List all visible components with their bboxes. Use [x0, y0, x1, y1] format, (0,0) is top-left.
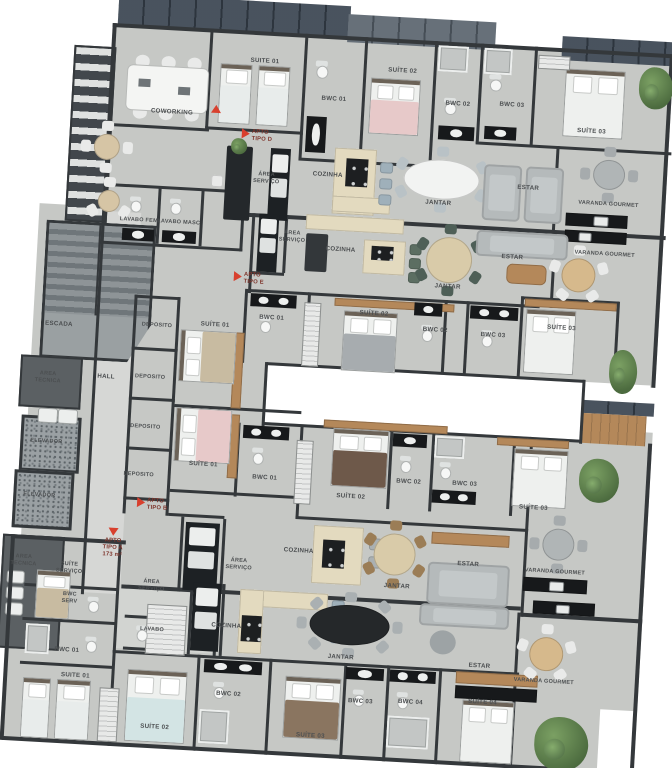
- wood-deck: [581, 413, 647, 447]
- apartment-marker: APTO TIPO B: [137, 497, 168, 513]
- sink: [214, 662, 227, 670]
- sink: [312, 123, 320, 145]
- blanket: [256, 87, 288, 126]
- single-bed: [217, 63, 252, 125]
- pillow: [134, 676, 154, 694]
- pillow: [544, 457, 562, 472]
- double-bed: [173, 407, 232, 464]
- sink: [578, 232, 591, 242]
- pillow: [292, 683, 311, 699]
- chair: [379, 178, 393, 190]
- bathroom-vanity: [432, 490, 477, 505]
- sink: [499, 310, 510, 318]
- chair: [553, 515, 566, 526]
- toilet: [399, 456, 411, 472]
- pillow: [182, 415, 197, 433]
- sink: [239, 664, 252, 672]
- double-bed: [330, 428, 389, 489]
- stove: [345, 158, 369, 187]
- room-label: SUÍTE 03: [577, 127, 606, 137]
- pillow: [490, 708, 508, 724]
- washer: [196, 588, 218, 607]
- single-bed: [54, 679, 91, 741]
- plant-leaves: [585, 476, 602, 494]
- sink: [404, 436, 417, 444]
- room-label: COZINHA: [211, 621, 241, 631]
- blanket: [369, 99, 419, 135]
- pillow: [373, 319, 391, 335]
- coworking-table: [125, 64, 209, 115]
- sofa-seat: [489, 235, 554, 255]
- elevator: [12, 469, 75, 530]
- washer: [272, 154, 288, 174]
- bathroom-vanity: [393, 433, 428, 448]
- pillow: [264, 72, 286, 87]
- room-label: BWC 03: [480, 331, 505, 340]
- washer: [189, 528, 216, 547]
- shower: [198, 709, 230, 745]
- double-bed: [511, 448, 568, 509]
- marker-triangle-icon: [211, 105, 221, 114]
- bathroom-vanity: [250, 293, 297, 309]
- shower: [438, 45, 469, 73]
- room-label: SUÍTE 03: [519, 503, 548, 513]
- double-bed: [178, 329, 237, 384]
- pillow: [598, 77, 618, 95]
- toilet: [169, 198, 181, 213]
- plant-leaves: [543, 738, 566, 761]
- room-label: SUÍTE 04: [468, 698, 497, 708]
- apartment-marker: APTO TIPO A 173 m²: [102, 527, 124, 560]
- room-label: ÁREA SERVIÇO: [225, 557, 252, 573]
- blanket: [342, 333, 396, 372]
- plant-leaves: [613, 367, 625, 385]
- bathroom-vanity: [484, 126, 517, 141]
- room-label: ÁREA SERVIÇO: [279, 229, 306, 245]
- room-label: ÁREA SERVIÇO: [253, 171, 280, 187]
- plant-leaves: [234, 144, 241, 151]
- room-label: BWC 03: [499, 101, 524, 110]
- washer: [261, 218, 277, 234]
- pillow: [340, 435, 359, 450]
- chair: [345, 592, 358, 603]
- stove: [241, 615, 262, 642]
- marker-triangle-icon: [242, 128, 251, 138]
- pillow: [468, 707, 486, 723]
- chair: [529, 537, 540, 550]
- bathroom-vanity: [438, 125, 475, 141]
- bathroom-vanity: [305, 116, 327, 153]
- chair: [296, 616, 307, 629]
- sink: [440, 493, 450, 501]
- sink: [494, 129, 506, 137]
- single-bed: [255, 65, 290, 127]
- pillow: [185, 359, 200, 377]
- chair: [99, 162, 112, 173]
- double-bed: [282, 676, 341, 741]
- room-label: BWC 04: [398, 698, 423, 707]
- sink: [132, 231, 144, 239]
- room-label: SUÍTE 01: [200, 320, 229, 330]
- sink: [173, 233, 186, 241]
- floor-plan: COWORKINGSUITE 01SUÍTE 02BWC 01BWC 02BWC…: [0, 0, 672, 768]
- chair: [445, 224, 458, 235]
- toilet: [489, 74, 502, 90]
- pillow: [160, 678, 180, 696]
- sink: [278, 297, 289, 305]
- sink: [423, 305, 433, 313]
- marker-triangle-icon: [108, 528, 118, 537]
- chair: [541, 624, 554, 635]
- shower: [386, 715, 430, 749]
- room-label: ESCADA: [45, 320, 73, 330]
- room-label: SUÍTE 02: [140, 723, 169, 733]
- sink: [593, 216, 609, 227]
- room-label: BWC SERV: [61, 591, 78, 606]
- chair: [628, 170, 639, 183]
- room-label: BWC 02: [445, 100, 470, 109]
- chair: [211, 175, 224, 188]
- chair: [604, 147, 617, 158]
- laundry-counter: [182, 522, 220, 592]
- washer: [260, 238, 276, 254]
- pillow: [398, 86, 415, 101]
- pillow: [377, 85, 394, 100]
- bathroom-vanity: [162, 230, 197, 244]
- room-label: ESTAR: [457, 560, 479, 569]
- room-label: JANTAR: [384, 582, 411, 592]
- double-bed: [341, 310, 398, 373]
- sink: [358, 670, 372, 678]
- sofa-seat: [488, 174, 517, 211]
- laptop: [178, 87, 190, 96]
- sink: [449, 129, 462, 138]
- room-label: BWC 02: [422, 326, 447, 335]
- room-label: BWC 01: [252, 473, 277, 482]
- sofa-seat: [432, 608, 496, 626]
- sink: [251, 428, 262, 436]
- double-bed: [368, 77, 421, 136]
- pillow: [573, 76, 593, 94]
- apartment-marker: APTO TIPO E: [233, 271, 264, 287]
- bathroom-vanity: [346, 667, 385, 681]
- room-label: JANTAR: [425, 199, 452, 209]
- sink: [271, 429, 282, 437]
- chair: [437, 146, 450, 157]
- pillow: [364, 437, 383, 452]
- pillow: [226, 69, 248, 84]
- blanket: [21, 699, 49, 738]
- toilet-bowl: [316, 65, 329, 79]
- room-label: BWC 02: [216, 690, 241, 699]
- pillow: [316, 684, 335, 700]
- sofa-seat: [530, 177, 559, 214]
- toilet: [85, 636, 97, 651]
- room-label: COZINHA: [325, 245, 355, 255]
- apartment-type-label: APTO TIPO E: [243, 272, 264, 288]
- chair: [577, 540, 588, 553]
- apartment-marker: APTO TIPO D: [241, 128, 272, 144]
- double-bed: [459, 700, 514, 765]
- chair: [390, 520, 403, 531]
- sink: [417, 673, 427, 681]
- room-label: BWC 03: [348, 697, 373, 706]
- chair: [378, 194, 392, 206]
- room-label: BWC 03: [452, 480, 477, 489]
- shower: [24, 623, 50, 654]
- blanket: [195, 409, 231, 463]
- blanket: [460, 723, 512, 763]
- room-label: SUÍTE 01: [189, 460, 218, 470]
- desk: [223, 146, 253, 221]
- toilet: [251, 447, 263, 463]
- room-label: ÁREA SERVIÇO: [138, 578, 165, 594]
- room-label: BWC 01: [321, 95, 346, 104]
- toilet: [87, 596, 99, 611]
- blanket: [125, 696, 185, 743]
- sofa: [523, 166, 564, 224]
- pillow: [186, 337, 201, 355]
- room-label: SUÍTE 02: [359, 309, 388, 319]
- apartment-type-label: APTO TIPO D: [251, 129, 272, 145]
- sink: [549, 581, 565, 592]
- room-label: AREA TECNICA: [10, 553, 37, 569]
- chair: [102, 121, 115, 132]
- room-label: ESTAR: [468, 662, 490, 671]
- chair: [104, 177, 117, 188]
- room-label: SUÍTE SERVIÇO: [56, 561, 83, 577]
- laundry-counter: [190, 582, 222, 651]
- room-label: COZINHA: [283, 546, 313, 556]
- bathroom-vanity: [414, 302, 443, 317]
- chair: [123, 142, 134, 155]
- headboard: [24, 678, 50, 683]
- sink: [479, 308, 490, 316]
- room-label: COZINHA: [312, 170, 342, 180]
- sink: [259, 296, 270, 304]
- double-bed: [124, 669, 188, 744]
- shower: [434, 436, 465, 460]
- room-label: SUITE 01: [250, 57, 279, 67]
- blanket: [55, 701, 89, 740]
- bathroom-vanity: [122, 228, 155, 242]
- single-bed: [20, 677, 51, 738]
- room-label: SUÍTE 03: [296, 731, 325, 741]
- sink: [556, 605, 570, 615]
- floor-plan-page: COWORKINGSUITE 01SUÍTE 02BWC 01BWC 02BWC…: [0, 0, 672, 768]
- sink: [398, 672, 408, 680]
- toilet: [129, 196, 141, 211]
- room-label: SUÍTE 02: [388, 66, 417, 76]
- apartment-type-label: APTO TIPO B: [147, 498, 168, 514]
- chair: [81, 139, 92, 152]
- equipment-unit: [57, 409, 78, 425]
- plant-leaves: [644, 84, 659, 102]
- chair: [580, 167, 591, 180]
- bathroom-vanity: [389, 669, 436, 684]
- wardrobe: [301, 302, 322, 367]
- room-label: SUITE 01: [61, 671, 90, 681]
- marker-triangle-icon: [137, 497, 146, 507]
- room-label: JANTAR: [434, 282, 461, 292]
- plant: [638, 66, 672, 110]
- pillow: [43, 576, 66, 588]
- apartment-marker: [211, 105, 221, 114]
- chair: [380, 162, 394, 174]
- room-label: JANTAR: [327, 653, 354, 663]
- bathroom-vanity: [470, 305, 519, 321]
- toilet: [315, 60, 328, 77]
- bathroom-vanity: [243, 425, 290, 441]
- room-label: SUÍTE 03: [547, 324, 576, 334]
- toilet: [439, 462, 451, 478]
- pillow: [350, 318, 368, 334]
- pillow: [28, 683, 47, 698]
- wardrobe: [97, 687, 120, 742]
- room-label: HALL: [97, 373, 115, 382]
- equipment-unit: [37, 407, 58, 423]
- room-label: AREA TECNICA: [34, 370, 61, 386]
- sofa-seat: [439, 570, 498, 600]
- blanket: [524, 333, 574, 374]
- pillow: [181, 438, 196, 456]
- blanket: [199, 331, 235, 383]
- stove: [322, 540, 346, 569]
- room-label: BWC 01: [54, 646, 79, 655]
- marker-triangle-icon: [234, 271, 243, 281]
- shower: [484, 48, 513, 76]
- chair: [392, 622, 403, 635]
- wardrobe: [538, 55, 571, 71]
- sofa: [481, 164, 522, 222]
- pillow: [521, 455, 539, 470]
- pillow: [63, 685, 86, 700]
- blanket: [331, 450, 387, 488]
- blanket: [513, 470, 567, 508]
- room-label: LAVABO: [140, 626, 164, 634]
- laundry-counter: [256, 213, 279, 272]
- stove: [371, 246, 394, 261]
- laptop: [138, 79, 150, 88]
- apartment-type-label: APTO TIPO A 173 m²: [102, 537, 123, 560]
- room-label: SUÍTE 02: [336, 492, 365, 502]
- sink: [458, 494, 468, 502]
- blanket: [218, 85, 250, 124]
- room-label: ESTAR: [501, 253, 523, 262]
- room-label: ESTAR: [517, 184, 539, 193]
- room-label: BWC 01: [259, 314, 284, 323]
- double-bed: [523, 309, 576, 376]
- washer: [188, 551, 215, 570]
- wardrobe: [293, 440, 314, 505]
- room-label: BWC 02: [396, 477, 421, 486]
- coffee-table: [506, 263, 547, 285]
